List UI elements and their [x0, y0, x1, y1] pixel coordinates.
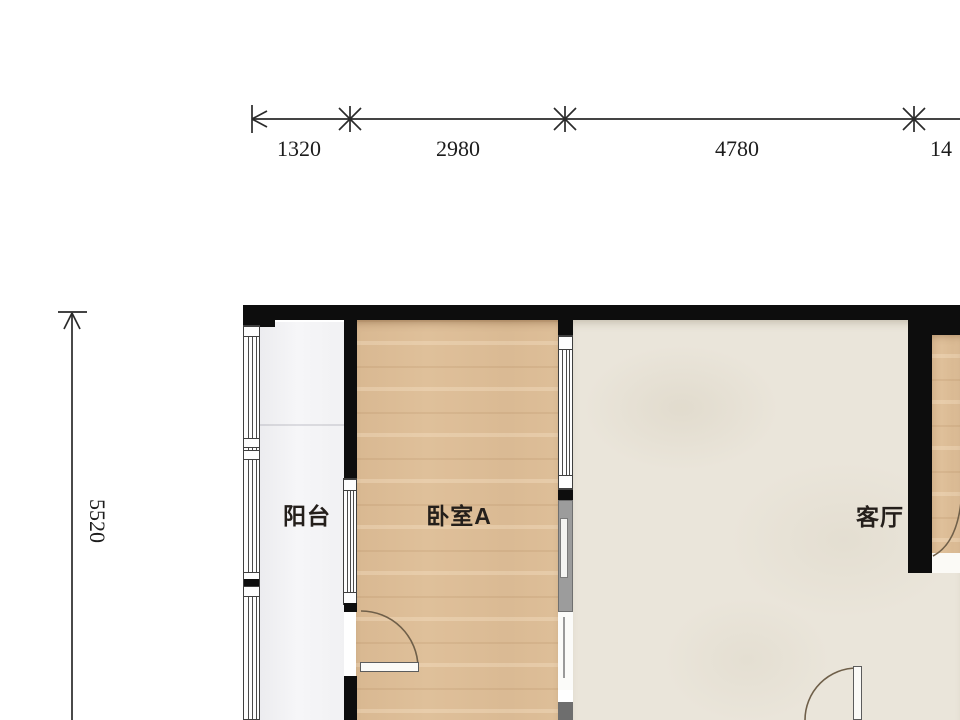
window-frame-bar [244, 579, 259, 586]
window-glazing-line [353, 479, 354, 604]
dimension-label: 4780 [705, 136, 769, 162]
dimension-label: 2980 [426, 136, 490, 162]
sliding-door-slot [560, 518, 568, 578]
sliding-door-moving-panel [558, 612, 573, 690]
window-glazing-line [569, 336, 570, 489]
window-mullion [244, 586, 259, 597]
window-icon-bedroom-living [558, 335, 573, 490]
window-frame-cap [559, 336, 572, 350]
dimension-label-truncated: 14 [930, 136, 960, 162]
wall-top-right-corner [932, 305, 960, 335]
window-frame-cap [344, 479, 356, 491]
window-glazing-line [350, 479, 351, 604]
window-glazing-line [252, 326, 253, 719]
door-swing-bedroom-icon [350, 600, 440, 690]
wall-balcony-bedroom-upper [344, 318, 357, 478]
window-glazing-line [347, 479, 348, 604]
room-label-balcony: 阳台 [276, 497, 338, 531]
window-glazing-line [256, 326, 257, 719]
window-glazing-line [248, 326, 249, 719]
wall-partition-mid [558, 490, 573, 500]
wall-top-left-corner [243, 305, 275, 327]
window-icon-balcony-exterior [243, 325, 260, 720]
left-dimension-label: 5520 [84, 491, 110, 551]
wall-partition-bottom [558, 702, 573, 720]
room-label-bedroom-a: 卧室A [414, 497, 504, 531]
window-frame-cap [244, 326, 259, 337]
window-glazing-line [566, 336, 567, 489]
door-swing-right-icon [925, 480, 960, 560]
door-leaf [853, 666, 862, 720]
window-frame-cap [559, 475, 572, 489]
window-mullion [244, 450, 259, 460]
window-glazing-line [562, 336, 563, 489]
room-label-living: 客厅 [849, 498, 911, 532]
window-icon-balcony-bedroom [343, 478, 357, 605]
door-swing-living-icon [795, 658, 885, 720]
window-mullion [244, 438, 259, 448]
balcony-tile-joint [260, 424, 344, 426]
wall-partition-top [558, 318, 573, 335]
sliding-door-track-line [563, 617, 565, 678]
floor-plan-canvas: 1320 2980 4780 14 5520 [0, 0, 960, 720]
door-leaf [360, 662, 419, 672]
dimension-label: 1320 [267, 136, 331, 162]
top-dimension-line [235, 95, 960, 140]
